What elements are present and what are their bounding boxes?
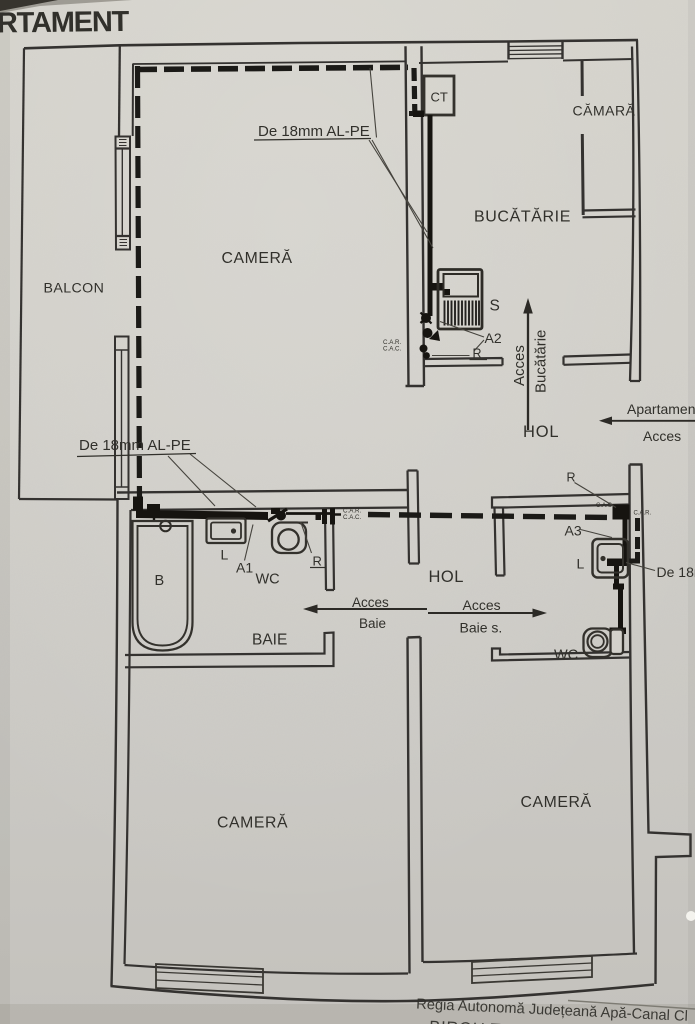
svg-text:De 18mm AL-PE: De 18mm AL-PE bbox=[258, 123, 370, 140]
svg-text:BUCĂTĂRIE: BUCĂTĂRIE bbox=[474, 207, 571, 226]
svg-text:C.A.C.: C.A.C. bbox=[343, 514, 362, 521]
svg-text:HOL: HOL bbox=[429, 568, 464, 586]
svg-text:CAMERĂ: CAMERĂ bbox=[217, 813, 288, 832]
svg-text:HOL: HOL bbox=[523, 423, 559, 441]
svg-text:C.A.C.: C.A.C. bbox=[383, 346, 402, 353]
svg-text:C.A.R.: C.A.R. bbox=[634, 511, 652, 517]
svg-text:Baie: Baie bbox=[359, 616, 386, 631]
svg-text:C.A.C.: C.A.C. bbox=[596, 503, 614, 509]
svg-text:CT: CT bbox=[431, 90, 448, 105]
svg-text:L: L bbox=[221, 547, 229, 563]
svg-text:BAIE: BAIE bbox=[252, 632, 287, 649]
svg-text:RTAMENT: RTAMENT bbox=[0, 6, 130, 40]
svg-text:R: R bbox=[313, 554, 322, 569]
svg-text:De 18mm AL-PE: De 18mm AL-PE bbox=[79, 437, 191, 454]
svg-text:Acces: Acces bbox=[352, 595, 389, 610]
svg-text:R: R bbox=[567, 471, 576, 485]
svg-text:Apartamen: Apartamen bbox=[627, 401, 695, 417]
svg-text:Acces: Acces bbox=[463, 597, 501, 613]
svg-text:Acces: Acces bbox=[511, 345, 528, 386]
svg-text:CAMERĂ: CAMERĂ bbox=[521, 792, 592, 811]
svg-text:Acces: Acces bbox=[643, 428, 681, 444]
svg-text:Baie s.: Baie s. bbox=[460, 620, 503, 636]
svg-text:CAMERĂ: CAMERĂ bbox=[222, 248, 293, 267]
svg-text:A2: A2 bbox=[485, 330, 502, 346]
svg-text:A3: A3 bbox=[565, 523, 582, 539]
svg-text:R: R bbox=[473, 347, 482, 361]
svg-text:BALCON: BALCON bbox=[44, 281, 105, 297]
svg-text:A1: A1 bbox=[236, 560, 253, 576]
svg-text:WC: WC bbox=[256, 572, 280, 588]
svg-text:CĂMARĂ: CĂMARĂ bbox=[573, 103, 636, 119]
svg-text:De 18mm: De 18mm bbox=[657, 564, 695, 580]
svg-text:Bucătărie: Bucătărie bbox=[533, 330, 550, 393]
svg-text:S: S bbox=[490, 298, 500, 315]
svg-text:B: B bbox=[155, 573, 165, 589]
svg-text:WC: WC bbox=[554, 648, 578, 664]
svg-text:L: L bbox=[577, 556, 585, 572]
